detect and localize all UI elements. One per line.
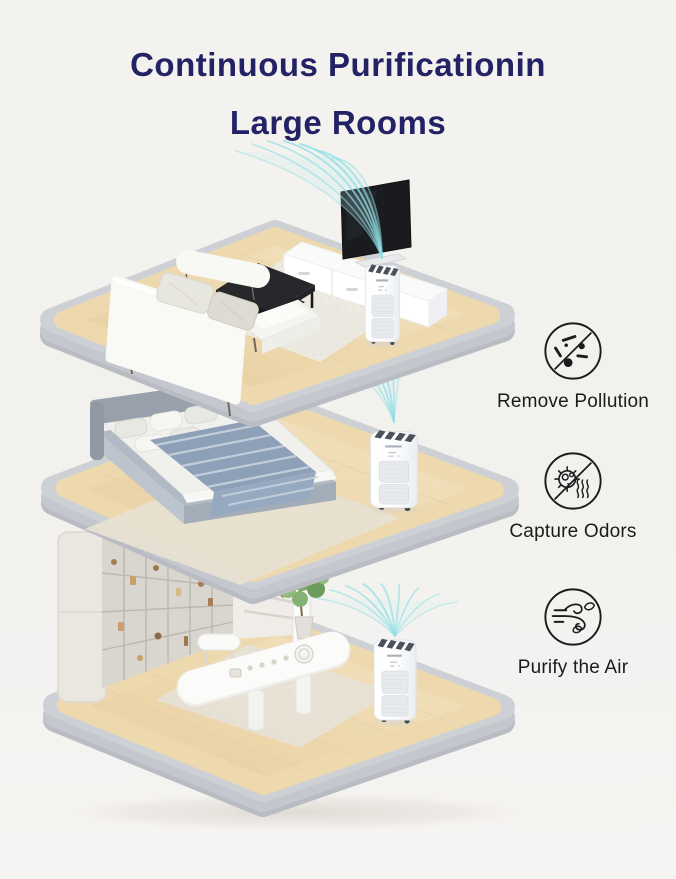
- capture-odors-icon: [542, 450, 604, 512]
- remove-pollution-icon: [542, 320, 604, 382]
- airflow-dining-room: [314, 584, 458, 636]
- title-line-2: Large Rooms: [0, 94, 676, 152]
- title-line-1: Continuous Purificationin: [0, 36, 676, 94]
- feature-label: Remove Pollution: [497, 391, 649, 413]
- air-purifier-dining-room: [374, 639, 416, 726]
- purify-the-air-icon: [542, 586, 604, 648]
- air-purifier-bedroom: [370, 430, 417, 513]
- feature-capture-odors: Capture Odors: [478, 450, 668, 543]
- storage-cabinet: [58, 532, 106, 702]
- air-purifier-living-room: [365, 264, 399, 347]
- feature-label: Purify the Air: [518, 657, 629, 679]
- feature-remove-pollution: Remove Pollution: [478, 320, 668, 413]
- feature-purify-the-air: Purify the Air: [478, 586, 668, 679]
- living-room-floor: [52, 141, 503, 416]
- infographic-canvas: Continuous Purificationin Large Rooms: [0, 0, 676, 879]
- feature-label: Capture Odors: [509, 521, 636, 543]
- page-title: Continuous Purificationin Large Rooms: [0, 36, 676, 152]
